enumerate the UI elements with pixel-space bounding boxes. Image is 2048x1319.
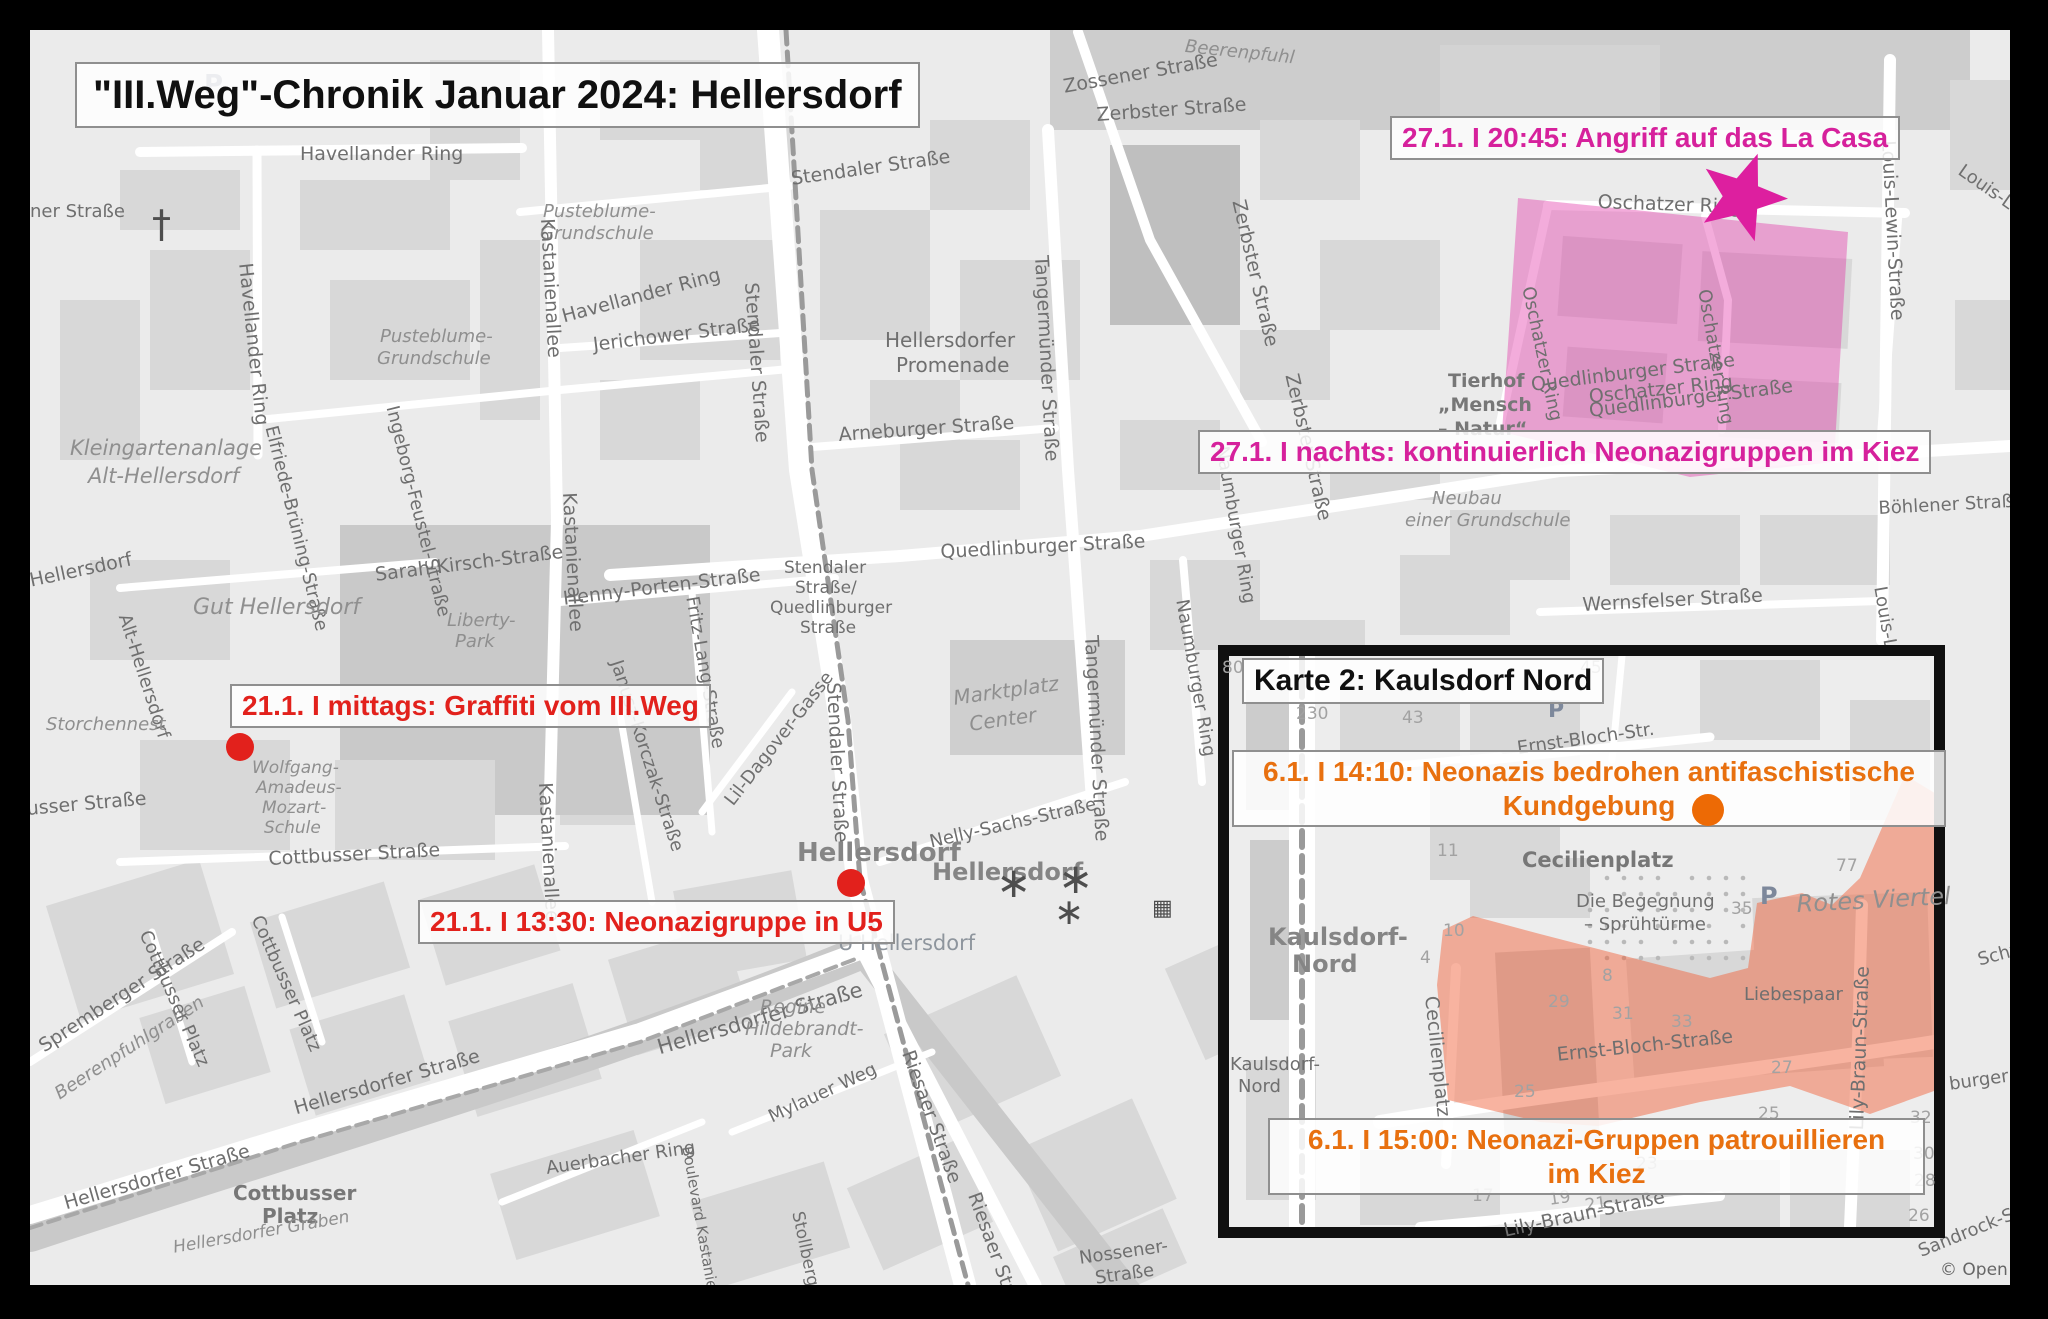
frame-bottom bbox=[0, 1285, 2048, 1319]
frame-right bbox=[2010, 0, 2048, 1319]
graffiti-dot-marker bbox=[226, 733, 254, 761]
u5-dot-marker bbox=[837, 869, 865, 897]
frame-top bbox=[0, 0, 2048, 30]
kundgebung-dot-marker bbox=[1692, 794, 1724, 826]
event-markers-layer bbox=[0, 0, 2048, 1319]
la-casa-star-marker bbox=[1704, 154, 1788, 241]
chronicle-map: Zossener StraßeBeerenpfuhlHavellander Ri… bbox=[0, 0, 2048, 1319]
frame-left bbox=[0, 0, 30, 1319]
